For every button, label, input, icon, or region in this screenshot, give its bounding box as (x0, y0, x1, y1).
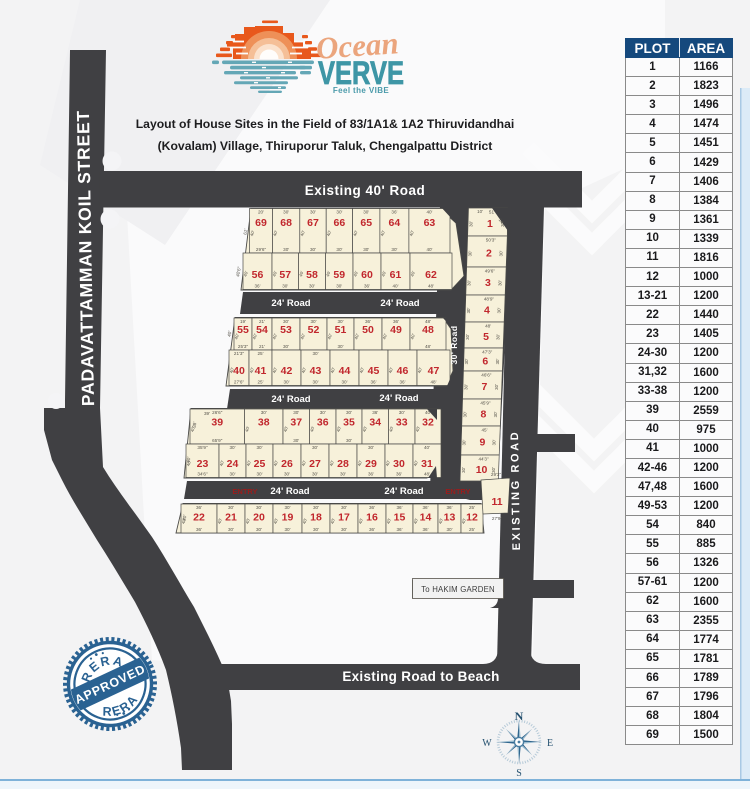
svg-text:48'9": 48'9" (484, 296, 495, 301)
svg-text:30': 30' (228, 527, 234, 532)
svg-text:48': 48' (425, 344, 431, 349)
svg-text:23: 23 (197, 458, 209, 470)
svg-text:30': 30' (336, 210, 342, 215)
svg-text:30': 30' (468, 250, 473, 256)
svg-text:5: 5 (483, 331, 489, 343)
svg-text:36': 36' (365, 319, 371, 324)
svg-text:21: 21 (225, 512, 237, 524)
svg-text:37: 37 (290, 417, 302, 429)
svg-text:38: 38 (258, 417, 270, 429)
svg-text:36': 36' (396, 472, 402, 477)
svg-text:27'9": 27'9" (492, 516, 503, 521)
svg-text:25': 25' (258, 380, 264, 385)
svg-text:57: 57 (279, 269, 291, 281)
svg-text:40': 40' (424, 445, 430, 450)
svg-text:58: 58 (306, 269, 318, 281)
svg-text:30': 30' (256, 527, 262, 532)
svg-text:25': 25' (469, 505, 475, 510)
svg-text:30': 30' (391, 247, 397, 252)
svg-text:40': 40' (227, 330, 233, 337)
svg-text:40': 40' (182, 514, 188, 521)
svg-text:30': 30' (338, 344, 344, 349)
svg-text:48': 48' (428, 284, 434, 289)
svg-text:4: 4 (484, 305, 490, 317)
svg-text:14: 14 (420, 512, 432, 524)
svg-text:44'3": 44'3" (478, 456, 489, 461)
svg-text:30': 30' (341, 527, 347, 532)
svg-text:36': 36' (364, 284, 370, 289)
svg-text:S: S (516, 768, 522, 779)
svg-text:6: 6 (482, 356, 488, 368)
svg-text:48: 48 (422, 324, 434, 336)
svg-text:30': 30' (228, 505, 234, 510)
svg-text:30': 30' (336, 247, 342, 252)
svg-text:30': 30' (293, 410, 299, 415)
svg-text:30': 30' (499, 250, 504, 256)
svg-text:30' Road: 30' Road (449, 325, 459, 364)
svg-text:30': 30' (495, 358, 500, 364)
svg-text:45': 45' (481, 427, 487, 432)
svg-text:30': 30' (282, 284, 288, 289)
svg-text:25': 25' (258, 351, 264, 356)
svg-text:30': 30' (283, 247, 289, 252)
svg-text:30': 30' (313, 505, 319, 510)
svg-text:16: 16 (366, 512, 378, 524)
svg-text:36': 36' (368, 472, 374, 477)
svg-text:66: 66 (334, 217, 346, 229)
svg-text:19: 19 (282, 512, 294, 524)
svg-text:30': 30' (363, 247, 369, 252)
svg-text:30': 30' (496, 334, 501, 340)
svg-text:30': 30' (363, 210, 369, 215)
svg-text:24' Road: 24' Road (379, 393, 418, 404)
svg-text:44: 44 (339, 365, 351, 377)
svg-text:33: 33 (396, 417, 408, 429)
svg-text:30': 30' (467, 280, 472, 286)
svg-text:30': 30' (230, 445, 236, 450)
svg-text:ENTRY: ENTRY (445, 487, 470, 496)
svg-text:7: 7 (481, 381, 487, 393)
svg-text:30': 30' (283, 344, 289, 349)
svg-text:24: 24 (227, 458, 239, 470)
svg-text:32: 32 (422, 417, 434, 429)
svg-text:30': 30' (310, 247, 316, 252)
svg-text:30': 30' (230, 472, 236, 477)
svg-text:50'3": 50'3" (486, 237, 497, 242)
svg-text:30': 30' (498, 280, 503, 286)
svg-text:30': 30' (368, 445, 374, 450)
svg-text:8: 8 (481, 409, 487, 421)
svg-text:52: 52 (308, 324, 320, 336)
svg-text:21': 21' (259, 344, 265, 349)
svg-text:53: 53 (280, 324, 292, 336)
svg-text:65'9": 65'9" (212, 438, 223, 443)
svg-text:24' Road: 24' Road (384, 486, 423, 497)
svg-text:30': 30' (313, 380, 319, 385)
svg-text:30': 30' (313, 351, 319, 356)
svg-text:45: 45 (368, 365, 380, 377)
svg-text:30': 30' (461, 467, 466, 473)
svg-text:30': 30' (462, 439, 467, 445)
svg-text:(Kovalam) Village, Thiruporur: (Kovalam) Village, Thiruporur Taluk, Che… (158, 139, 493, 153)
svg-text:36: 36 (317, 417, 329, 429)
svg-text:27: 27 (309, 458, 321, 470)
svg-text:30': 30' (494, 384, 499, 390)
svg-text:30': 30' (340, 472, 346, 477)
svg-text:48': 48' (485, 323, 491, 328)
svg-text:40': 40' (426, 247, 432, 252)
svg-text:30': 30' (338, 319, 344, 324)
svg-text:47'3": 47'3" (482, 349, 493, 354)
svg-text:30': 30' (284, 472, 290, 477)
svg-text:10': 10' (477, 209, 483, 214)
svg-text:46'6": 46'6" (481, 372, 492, 377)
svg-text:9: 9 (480, 437, 486, 449)
svg-text:3: 3 (485, 277, 491, 289)
svg-text:13: 13 (444, 512, 456, 524)
svg-text:30': 30' (463, 411, 468, 417)
svg-text:29: 29 (365, 458, 377, 470)
svg-text:47: 47 (428, 365, 440, 377)
svg-text:E: E (547, 738, 553, 749)
svg-text:36': 36' (369, 505, 375, 510)
svg-text:26'6": 26'6" (212, 410, 223, 415)
svg-text:36': 36' (372, 410, 378, 415)
svg-text:30': 30' (284, 380, 290, 385)
svg-text:24' Road: 24' Road (271, 298, 310, 309)
svg-text:30: 30 (393, 458, 405, 470)
svg-text:49: 49 (390, 324, 402, 336)
svg-text:60: 60 (361, 269, 373, 281)
svg-text:1: 1 (487, 218, 493, 230)
svg-text:63: 63 (424, 217, 436, 229)
svg-text:40': 40' (186, 456, 192, 463)
svg-text:21'3": 21'3" (234, 351, 245, 356)
svg-text:40': 40' (393, 284, 399, 289)
svg-text:45'9": 45'9" (480, 400, 491, 405)
svg-text:55: 55 (237, 324, 249, 336)
svg-text:25': 25' (469, 527, 475, 532)
svg-text:22: 22 (193, 512, 205, 524)
svg-text:25: 25 (254, 458, 266, 470)
svg-text:30': 30' (399, 410, 405, 415)
svg-text:30': 30' (261, 410, 267, 415)
svg-text:30': 30' (320, 410, 326, 415)
svg-text:30': 30' (313, 527, 319, 532)
svg-text:20: 20 (253, 512, 265, 524)
svg-text:67: 67 (307, 217, 319, 229)
svg-text:20': 20' (258, 210, 264, 215)
svg-text:36': 36' (369, 527, 375, 532)
svg-text:24' Road: 24' Road (380, 298, 419, 309)
svg-text:30': 30' (283, 319, 289, 324)
svg-text:54: 54 (256, 324, 268, 336)
svg-text:36': 36' (397, 527, 403, 532)
svg-text:42: 42 (281, 365, 293, 377)
svg-text:15: 15 (394, 512, 406, 524)
svg-text:50: 50 (362, 324, 374, 336)
svg-text:17: 17 (338, 512, 350, 524)
svg-text:36': 36' (196, 527, 202, 532)
svg-text:61: 61 (390, 269, 402, 281)
svg-text:40: 40 (233, 365, 245, 377)
svg-text:61': 61' (243, 228, 249, 235)
svg-text:30': 30' (283, 210, 289, 215)
svg-text:36': 36' (255, 284, 261, 289)
svg-text:Feel the VIBE: Feel the VIBE (333, 86, 390, 95)
svg-text:38': 38' (192, 421, 198, 428)
svg-text:25'3": 25'3" (238, 344, 249, 349)
svg-text:30': 30' (346, 438, 352, 443)
svg-text:ENTRY: ENTRY (232, 487, 257, 496)
svg-text:30': 30' (310, 210, 316, 215)
svg-text:12: 12 (466, 512, 478, 524)
svg-text:69: 69 (255, 217, 267, 229)
svg-text:36': 36' (447, 505, 453, 510)
svg-text:30': 30' (492, 439, 497, 445)
svg-text:2: 2 (486, 248, 492, 260)
svg-text:51: 51 (335, 324, 347, 336)
svg-text:31: 31 (421, 458, 433, 470)
svg-text:36': 36' (397, 505, 403, 510)
svg-text:48': 48' (431, 380, 437, 385)
svg-text:10: 10 (476, 464, 488, 476)
svg-text:30': 30' (464, 358, 469, 364)
svg-text:36': 36' (393, 319, 399, 324)
svg-text:30': 30' (309, 284, 315, 289)
svg-text:39': 39' (204, 411, 210, 416)
svg-text:Existing Road to Beach: Existing Road to Beach (342, 669, 499, 684)
svg-text:30': 30' (311, 319, 317, 324)
svg-text:59: 59 (333, 269, 345, 281)
svg-text:34: 34 (369, 417, 381, 429)
svg-text:30': 30' (465, 334, 470, 340)
svg-text:24' Road: 24' Road (270, 486, 309, 497)
svg-text:30': 30' (312, 445, 318, 450)
svg-text:64: 64 (389, 217, 401, 229)
svg-text:48': 48' (424, 472, 430, 477)
svg-text:30': 30' (285, 527, 291, 532)
svg-text:30': 30' (447, 527, 453, 532)
svg-text:34'6": 34'6" (197, 472, 208, 477)
svg-text:62: 62 (425, 269, 437, 281)
svg-text:18: 18 (310, 512, 322, 524)
svg-text:39: 39 (211, 417, 223, 429)
svg-text:35: 35 (343, 417, 355, 429)
svg-text:29'6": 29'6" (256, 247, 267, 252)
svg-text:30': 30' (257, 445, 263, 450)
svg-text:36': 36' (371, 380, 377, 385)
svg-text:N: N (515, 709, 524, 723)
svg-text:W: W (482, 738, 492, 749)
svg-text:30': 30' (312, 472, 318, 477)
svg-text:68: 68 (280, 217, 292, 229)
svg-text:29'3": 29'3" (491, 472, 502, 477)
svg-text:28: 28 (337, 458, 349, 470)
svg-text:Existing 40' Road: Existing 40' Road (305, 183, 426, 198)
svg-text:30': 30' (256, 505, 262, 510)
svg-text:30': 30' (257, 472, 263, 477)
svg-text:11: 11 (491, 496, 502, 508)
svg-text:36': 36' (391, 210, 397, 215)
svg-text:27'6": 27'6" (234, 380, 245, 385)
svg-text:30': 30' (285, 505, 291, 510)
svg-text:35'9": 35'9" (197, 445, 208, 450)
svg-text:30': 30' (463, 384, 468, 390)
svg-text:36': 36' (423, 505, 429, 510)
svg-text:30': 30' (469, 221, 474, 227)
svg-text:43: 43 (310, 365, 322, 377)
svg-text:21': 21' (259, 319, 265, 324)
svg-text:46: 46 (397, 365, 409, 377)
svg-text:30': 30' (293, 438, 299, 443)
svg-text:26: 26 (281, 458, 293, 470)
svg-text:40': 40' (426, 210, 432, 215)
svg-text:30': 30' (336, 284, 342, 289)
svg-text:30': 30' (341, 505, 347, 510)
svg-text:56: 56 (252, 269, 264, 281)
svg-text:30': 30' (497, 307, 502, 313)
svg-text:36': 36' (423, 527, 429, 532)
svg-text:36': 36' (400, 380, 406, 385)
svg-text:24' Road: 24' Road (271, 394, 310, 405)
svg-text:30': 30' (342, 380, 348, 385)
svg-text:49'6": 49'6" (485, 268, 496, 273)
svg-text:36': 36' (196, 505, 202, 510)
svg-text:48': 48' (425, 319, 431, 324)
svg-text:Layout of House Sites in the F: Layout of House Sites in the Field of 83… (136, 117, 515, 131)
svg-text:41: 41 (255, 365, 267, 377)
svg-text:30': 30' (346, 410, 352, 415)
svg-text:30': 30' (493, 411, 498, 417)
svg-text:To HAKIM GARDEN: To HAKIM GARDEN (421, 585, 495, 594)
svg-text:65: 65 (360, 217, 372, 229)
svg-text:19': 19' (240, 319, 246, 324)
svg-text:30': 30' (466, 307, 471, 313)
